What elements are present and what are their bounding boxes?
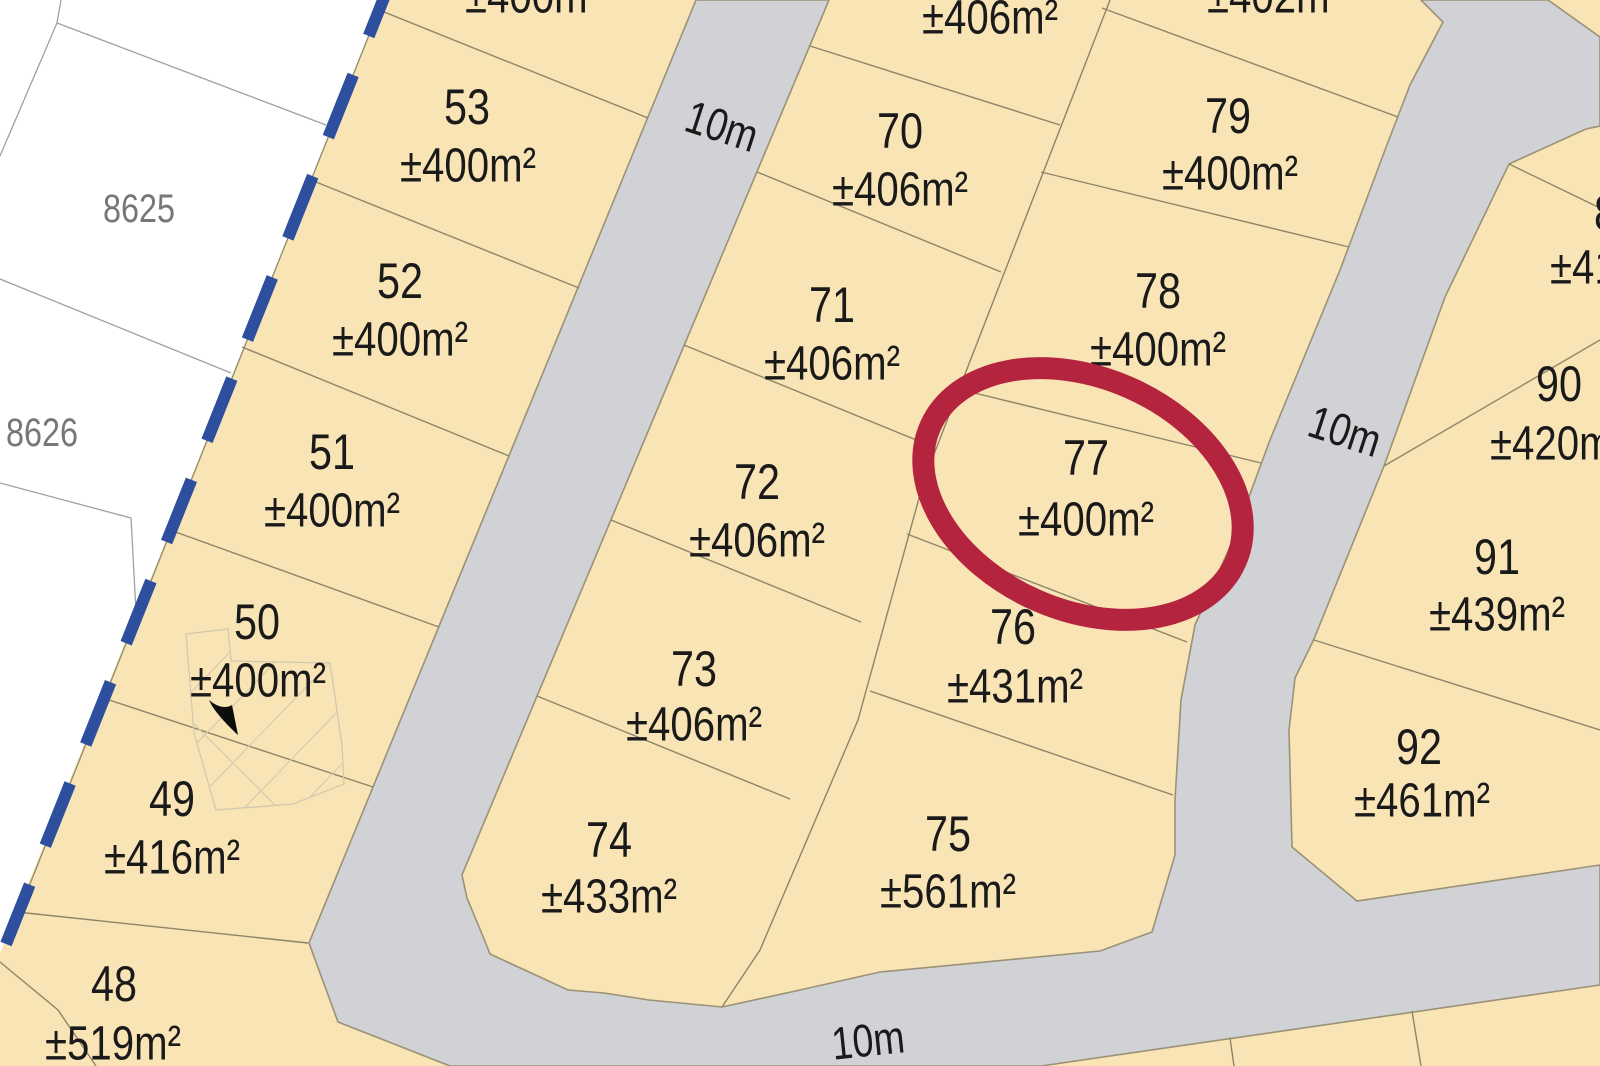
svg-text:75: 75 [925, 806, 971, 862]
svg-text:±439m²: ±439m² [1429, 589, 1565, 642]
svg-text:±519m²: ±519m² [45, 1018, 181, 1066]
svg-text:73: 73 [671, 641, 717, 697]
svg-text:±400m²: ±400m² [1018, 494, 1154, 547]
svg-text:±406m²: ±406m² [764, 338, 900, 391]
svg-text:90: 90 [1536, 356, 1582, 412]
svg-text:10m: 10m [829, 1010, 907, 1066]
svg-text:72: 72 [734, 454, 780, 510]
svg-text:48: 48 [91, 956, 137, 1012]
svg-text:±406m²: ±406m² [689, 515, 825, 568]
svg-text:±406m²: ±406m² [922, 0, 1058, 45]
svg-text:±400m²: ±400m² [264, 485, 400, 538]
svg-text:53: 53 [444, 79, 490, 135]
svg-text:50: 50 [234, 594, 280, 650]
svg-text:±400m²: ±400m² [1162, 148, 1298, 201]
svg-text:±406m²: ±406m² [832, 164, 968, 217]
svg-text:92: 92 [1396, 719, 1442, 775]
svg-text:74: 74 [586, 812, 632, 868]
svg-text:91: 91 [1474, 529, 1520, 585]
svg-text:78: 78 [1135, 263, 1181, 319]
svg-text:71: 71 [809, 277, 855, 333]
svg-text:±400m²: ±400m² [400, 140, 536, 193]
svg-text:51: 51 [309, 424, 355, 480]
svg-text:±561m²: ±561m² [880, 866, 1016, 919]
svg-text:±400m²: ±400m² [332, 314, 468, 367]
svg-text:±461m²: ±461m² [1354, 775, 1490, 828]
svg-text:±400m²: ±400m² [1090, 324, 1226, 377]
svg-text:±410m²: ±410m² [1550, 242, 1600, 295]
svg-text:49: 49 [149, 771, 195, 827]
svg-text:±433m²: ±433m² [541, 871, 677, 924]
svg-text:±402m²: ±402m² [1207, 0, 1343, 24]
svg-text:±420m²: ±420m² [1490, 418, 1600, 471]
svg-text:±416m²: ±416m² [104, 832, 240, 885]
svg-text:77: 77 [1063, 430, 1109, 486]
svg-text:±406m²: ±406m² [626, 699, 762, 752]
svg-text:8625: 8625 [103, 187, 175, 231]
svg-text:52: 52 [377, 253, 423, 309]
svg-text:±400m²: ±400m² [190, 655, 326, 708]
svg-text:85: 85 [1594, 185, 1600, 241]
svg-text:±400m²: ±400m² [465, 0, 601, 24]
svg-text:79: 79 [1205, 88, 1251, 144]
svg-text:70: 70 [877, 103, 923, 159]
svg-text:8626: 8626 [6, 411, 78, 455]
svg-text:±431m²: ±431m² [947, 661, 1083, 714]
